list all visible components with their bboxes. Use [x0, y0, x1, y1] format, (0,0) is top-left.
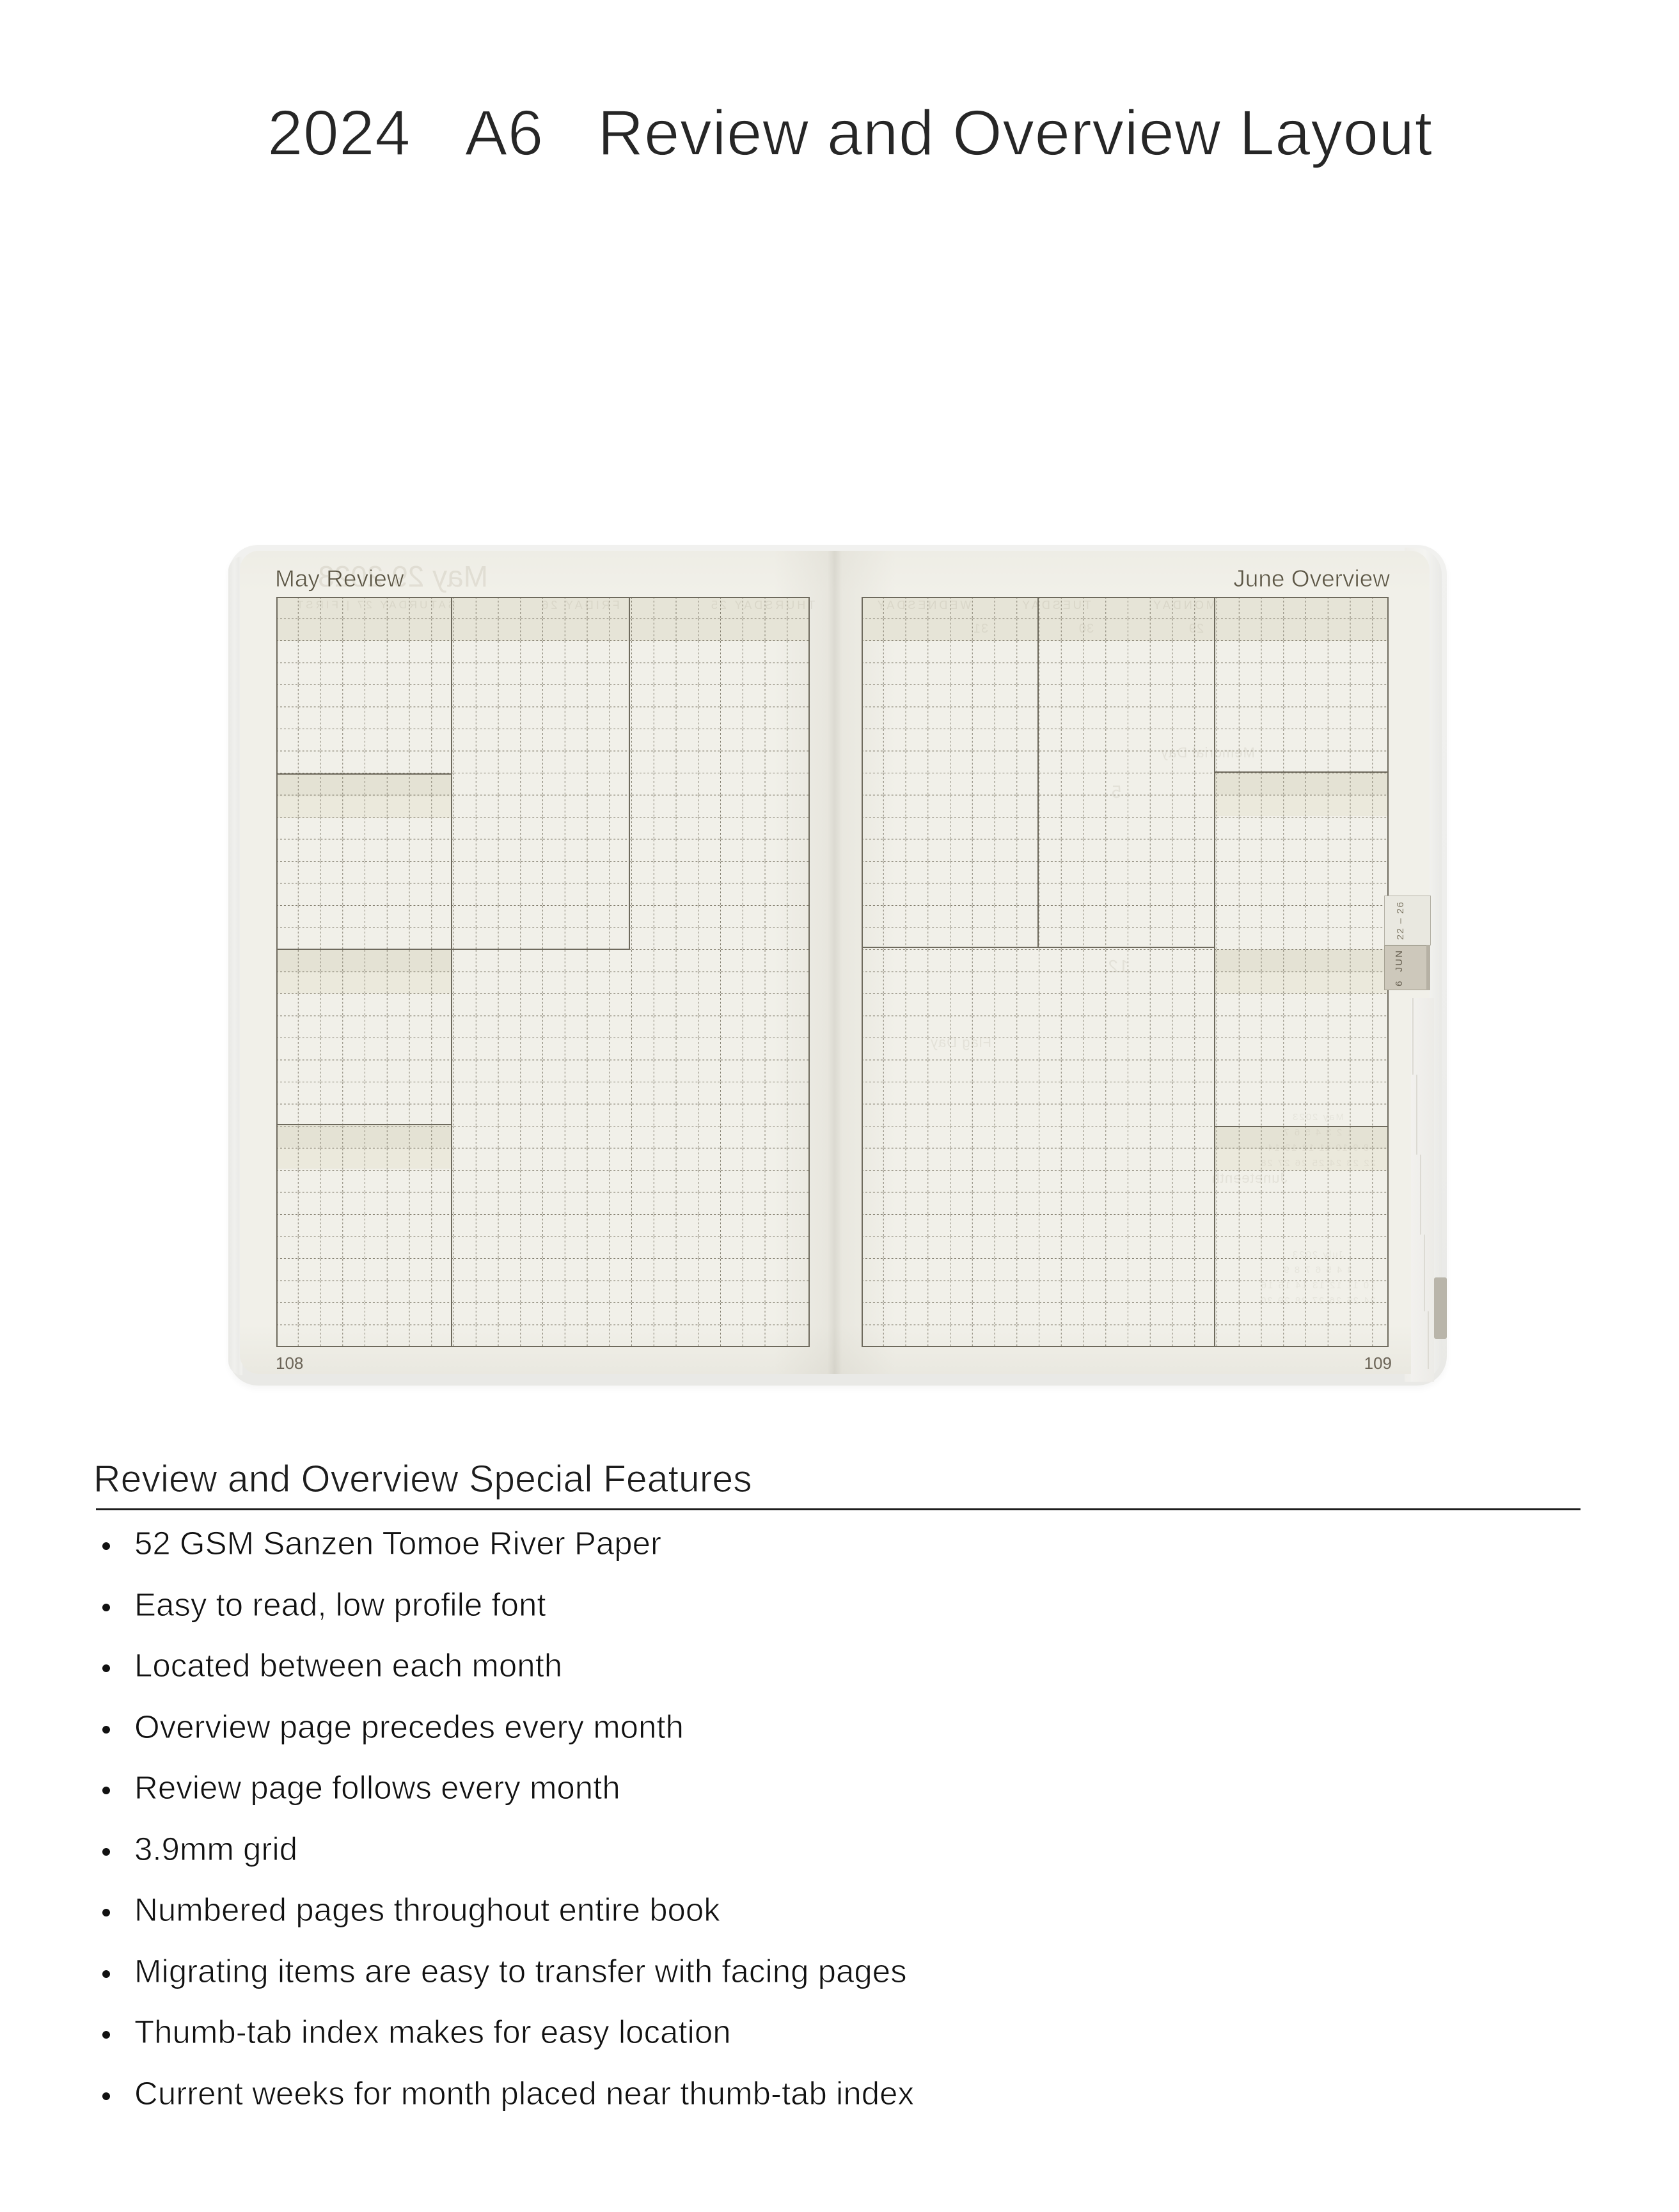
svg-text:6 JUN: 6 JUN: [1394, 949, 1405, 986]
svg-text:22 – 26: 22 – 26: [1395, 901, 1406, 940]
